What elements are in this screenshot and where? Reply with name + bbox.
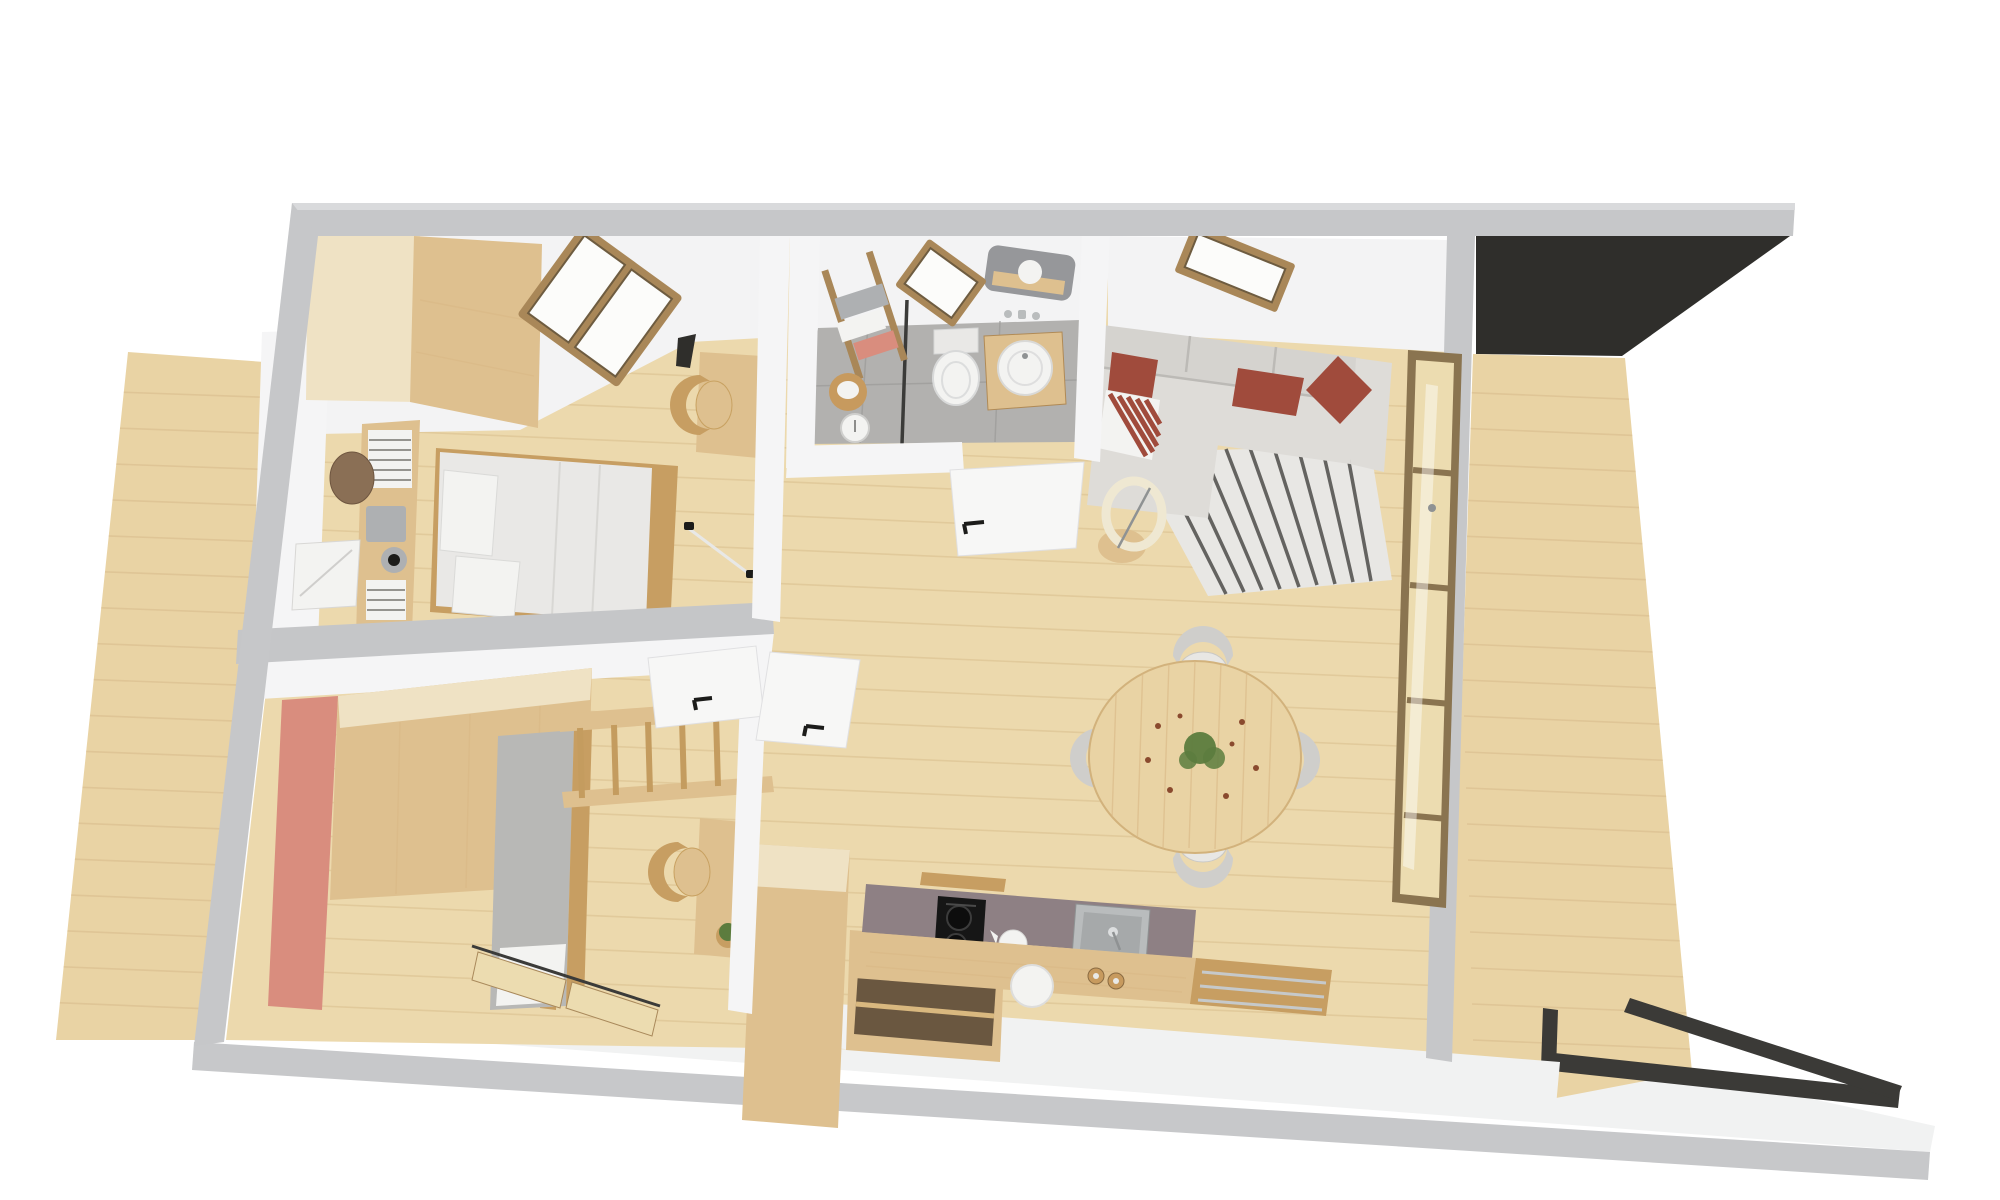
bathroom-door	[950, 462, 1084, 556]
kids-room-door	[756, 652, 860, 748]
bed-pillow	[452, 556, 520, 618]
vanity-basin	[998, 341, 1052, 395]
floor-plan-render	[0, 0, 2000, 1200]
floor-plan-canvas	[0, 0, 2000, 1200]
vanity	[984, 332, 1066, 410]
basket-towel	[837, 381, 859, 399]
kitchen-stool	[1011, 965, 1053, 1007]
toilet	[933, 328, 979, 405]
north-wall-highlight	[292, 203, 1795, 210]
striped-pillow	[1098, 390, 1160, 460]
red-pillow	[1108, 352, 1158, 398]
hat	[330, 452, 374, 504]
bathroom-south-wall	[786, 442, 964, 478]
grey-box	[366, 506, 406, 542]
bed-pillow	[440, 470, 498, 556]
leaning-board	[292, 540, 360, 610]
tall-cabinet	[742, 844, 850, 1128]
wardrobe	[306, 232, 542, 428]
window-handle	[1428, 504, 1436, 512]
bedroom-door	[648, 646, 764, 728]
double-bed	[430, 448, 678, 630]
